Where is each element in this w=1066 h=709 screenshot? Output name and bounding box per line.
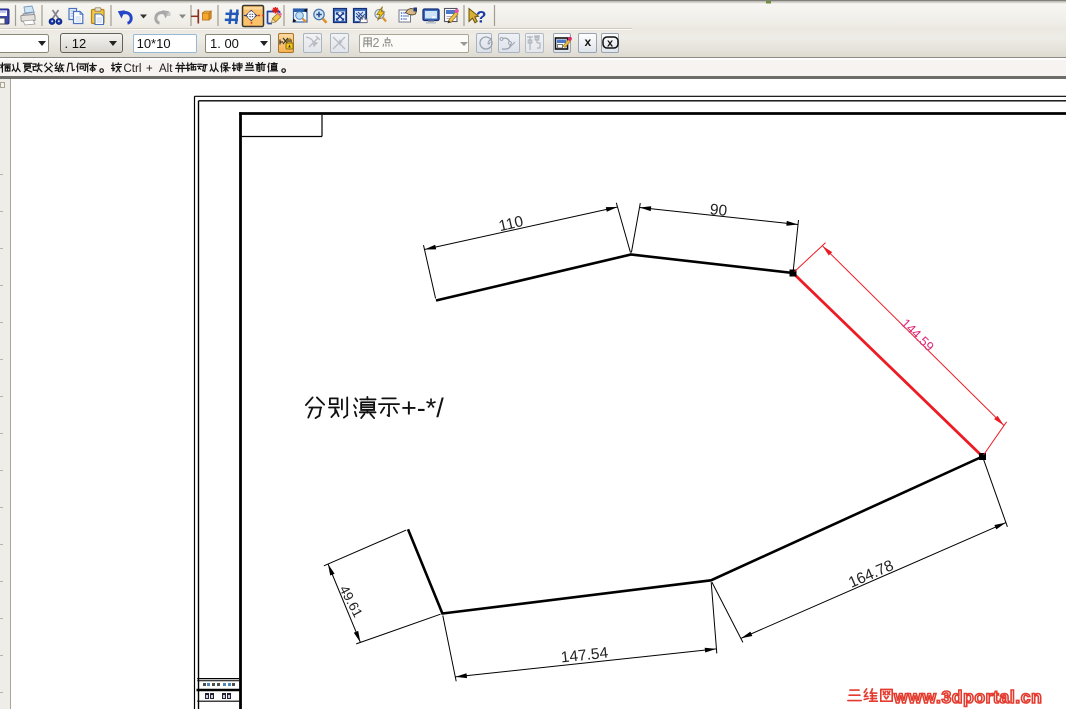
svg-text:164.78: 164.78 bbox=[846, 557, 896, 592]
svg-text:49.61: 49.61 bbox=[336, 583, 365, 620]
svg-text:147.54: 147.54 bbox=[560, 645, 609, 667]
svg-text:110: 110 bbox=[497, 213, 525, 235]
svg-text:144.59: 144.59 bbox=[898, 315, 937, 354]
svg-text:90: 90 bbox=[709, 201, 728, 220]
